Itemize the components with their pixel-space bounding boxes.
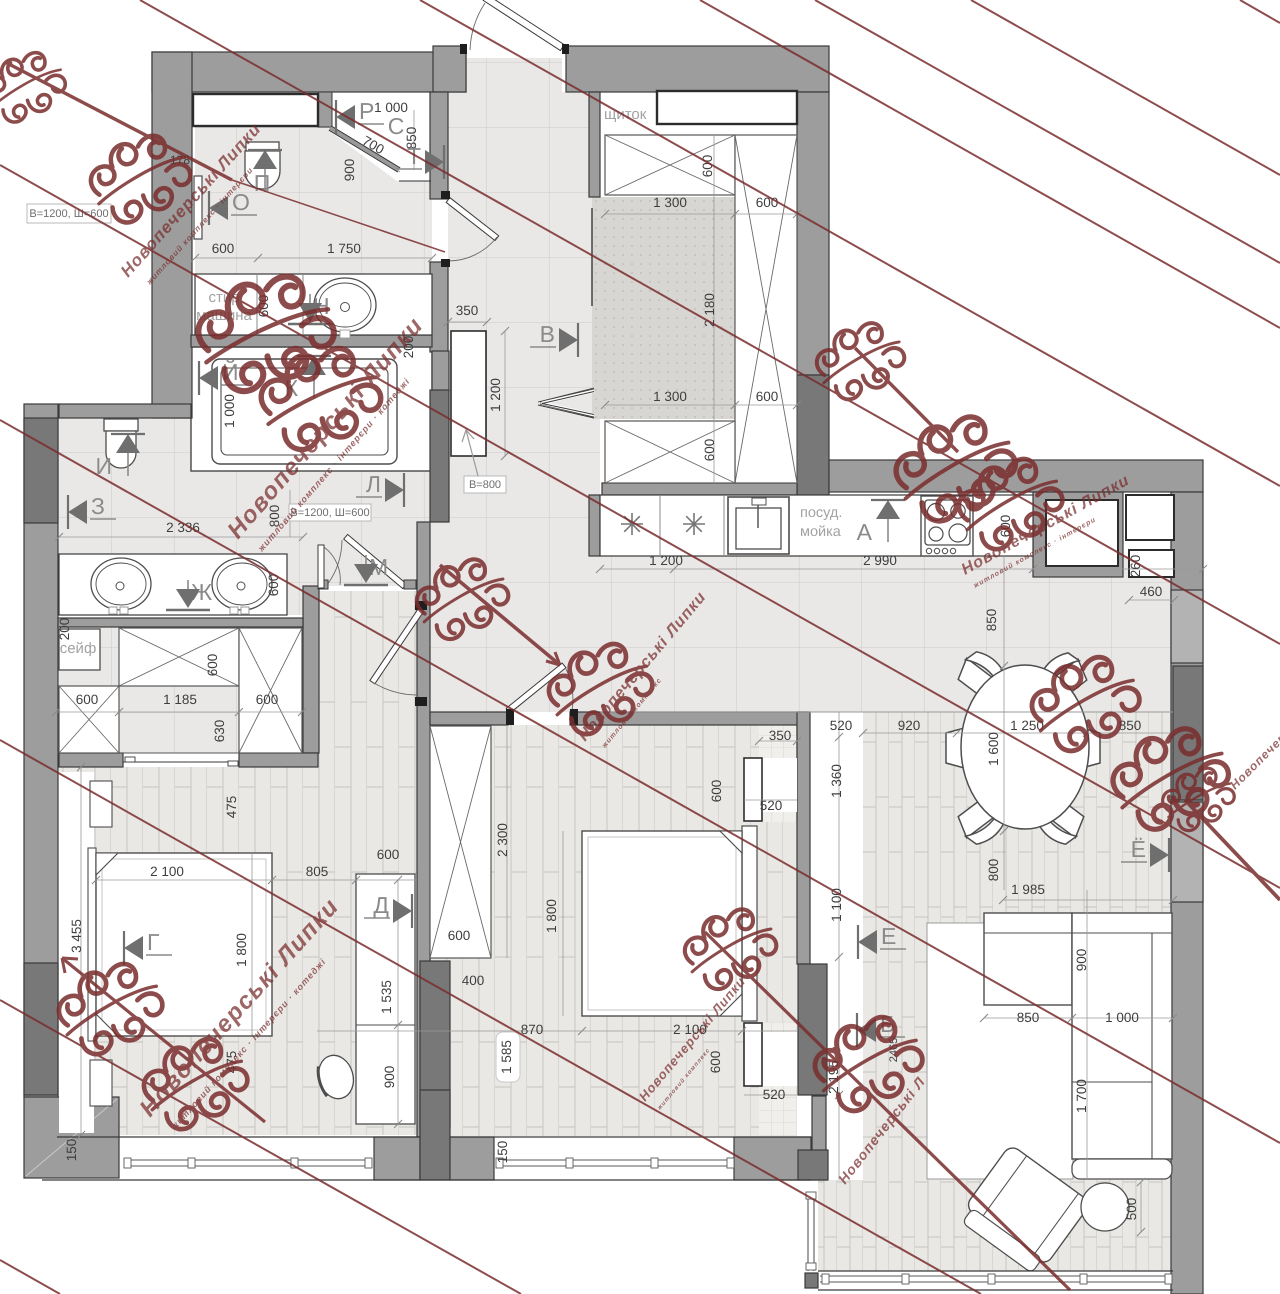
svg-text:460: 460 <box>1140 584 1163 599</box>
svg-text:150: 150 <box>64 1139 79 1162</box>
svg-text:1 300: 1 300 <box>653 195 687 210</box>
svg-text:800: 800 <box>986 859 1001 882</box>
svg-text:В=1200, Ш=600: В=1200, Ш=600 <box>29 208 108 220</box>
svg-text:1 800: 1 800 <box>544 899 559 933</box>
svg-text:900: 900 <box>342 159 357 182</box>
svg-text:посуд.: посуд. <box>800 505 842 521</box>
svg-text:Ё: Ё <box>1131 836 1146 862</box>
svg-text:600: 600 <box>448 928 471 943</box>
svg-text:А: А <box>857 519 873 545</box>
svg-text:1 800: 1 800 <box>234 933 249 967</box>
svg-text:200: 200 <box>57 618 72 641</box>
svg-text:805: 805 <box>306 864 329 879</box>
svg-text:600: 600 <box>377 847 400 862</box>
svg-text:1 000: 1 000 <box>222 394 237 428</box>
svg-text:1 985: 1 985 <box>1011 882 1045 897</box>
svg-text:600: 600 <box>708 1051 723 1074</box>
svg-text:мойка: мойка <box>800 524 842 540</box>
svg-text:1 585: 1 585 <box>499 1040 514 1074</box>
svg-text:З: З <box>91 493 105 519</box>
svg-text:850: 850 <box>984 609 999 632</box>
svg-text:2 100: 2 100 <box>150 864 184 879</box>
svg-text:350: 350 <box>456 303 479 318</box>
svg-text:Е: Е <box>881 923 896 949</box>
svg-text:150: 150 <box>495 1141 510 1164</box>
svg-text:600: 600 <box>205 654 220 677</box>
svg-text:600: 600 <box>702 439 717 462</box>
svg-text:900: 900 <box>1074 949 1089 972</box>
svg-text:2 300: 2 300 <box>495 823 510 857</box>
svg-text:Л: Л <box>366 471 381 497</box>
svg-text:сейф: сейф <box>60 640 97 657</box>
svg-text:520: 520 <box>763 1087 786 1102</box>
svg-text:850: 850 <box>1017 1010 1040 1025</box>
svg-text:920: 920 <box>898 718 921 733</box>
svg-text:1 750: 1 750 <box>327 241 361 256</box>
svg-text:600: 600 <box>756 195 779 210</box>
svg-text:630: 630 <box>212 720 227 743</box>
svg-text:870: 870 <box>521 1022 544 1037</box>
svg-text:С: С <box>388 113 405 139</box>
svg-text:Р: Р <box>359 98 374 124</box>
svg-text:600: 600 <box>709 780 724 803</box>
svg-text:900: 900 <box>382 1066 397 1089</box>
svg-text:600: 600 <box>212 241 235 256</box>
svg-text:1 360: 1 360 <box>829 764 844 798</box>
svg-text:1 700: 1 700 <box>1074 1079 1089 1113</box>
svg-text:В=1200, Ш=600: В=1200, Ш=600 <box>290 507 369 519</box>
svg-text:1 200: 1 200 <box>649 553 683 568</box>
svg-text:1 600: 1 600 <box>986 732 1001 766</box>
svg-text:В=800: В=800 <box>469 479 501 491</box>
svg-text:500: 500 <box>1124 1198 1139 1221</box>
svg-text:1 535: 1 535 <box>379 980 394 1014</box>
svg-text:1 185: 1 185 <box>163 692 197 707</box>
svg-text:Г: Г <box>147 929 160 955</box>
svg-text:3 455: 3 455 <box>69 919 84 953</box>
svg-text:2 990: 2 990 <box>863 553 897 568</box>
svg-text:600: 600 <box>76 692 99 707</box>
svg-text:600: 600 <box>256 692 279 707</box>
svg-text:850: 850 <box>1119 718 1142 733</box>
svg-text:Т: Т <box>407 143 421 169</box>
svg-text:520: 520 <box>760 798 783 813</box>
svg-text:В: В <box>540 321 555 347</box>
svg-text:1 300: 1 300 <box>653 389 687 404</box>
svg-text:600: 600 <box>756 389 779 404</box>
svg-text:1 000: 1 000 <box>1105 1010 1139 1025</box>
svg-text:Д: Д <box>373 892 389 918</box>
svg-text:475: 475 <box>224 796 239 819</box>
svg-text:400: 400 <box>462 973 485 988</box>
svg-text:520: 520 <box>830 718 853 733</box>
svg-text:350: 350 <box>769 728 792 743</box>
svg-text:1 200: 1 200 <box>488 378 503 412</box>
